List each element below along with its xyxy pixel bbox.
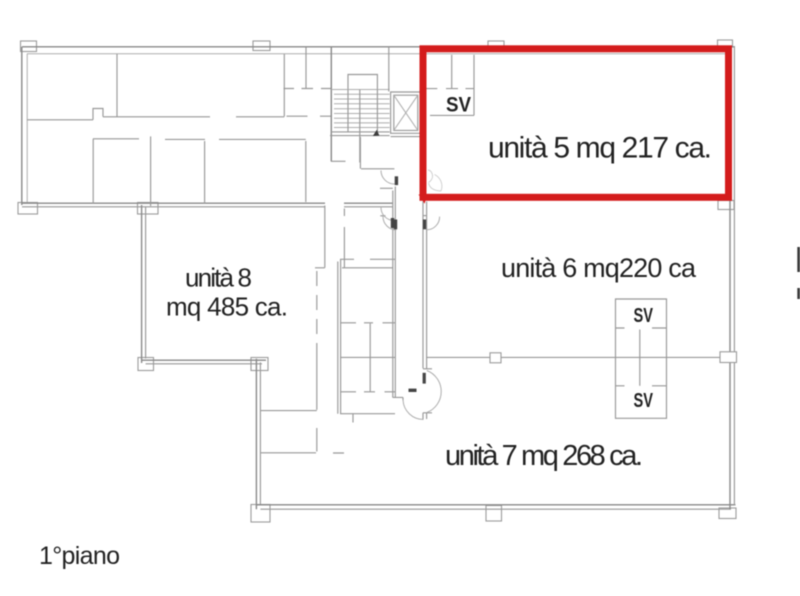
svg-text:unità 7 mq 268 ca.: unità 7 mq 268 ca.: [445, 440, 643, 472]
svg-text:unità 8: unità 8: [185, 263, 252, 293]
svg-text:unità 6 mq220 ca: unità 6 mq220 ca: [501, 253, 697, 283]
svg-text:SV: SV: [634, 390, 654, 412]
svg-text:SV: SV: [634, 305, 654, 327]
svg-text:unità 5 mq 217 ca.: unità 5 mq 217 ca.: [488, 132, 712, 165]
svg-text:mq 485 ca.: mq 485 ca.: [166, 292, 288, 322]
svg-text:1°piano: 1°piano: [39, 542, 120, 570]
svg-text:SV: SV: [446, 94, 471, 117]
